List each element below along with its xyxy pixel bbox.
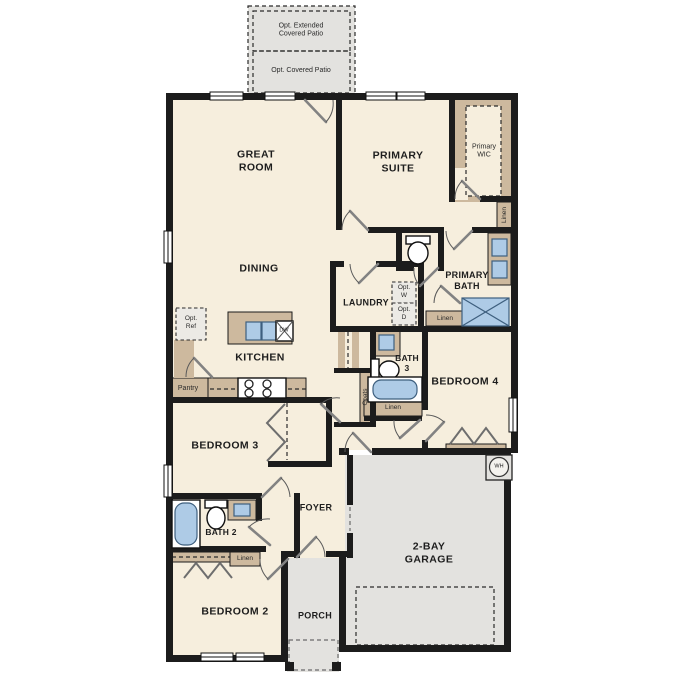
linen-bath-hall-box	[426, 311, 464, 326]
primary-wic-shelving	[452, 100, 513, 202]
shower-primary	[462, 298, 509, 326]
patio-area	[248, 6, 355, 98]
dishwasher-box	[276, 321, 293, 341]
bath2-vanity	[228, 500, 256, 520]
range-icon	[238, 378, 286, 398]
tub-bath3	[368, 377, 422, 402]
linen-primary-box	[497, 202, 513, 228]
toilet-bath2	[205, 500, 227, 529]
bath3-vanity	[374, 330, 400, 356]
laundry-closet-shelving	[338, 330, 359, 370]
garage-floor	[345, 455, 505, 646]
linen-bath2-box	[230, 552, 260, 566]
floor-plan: Opt. Extended Covered Patio Opt. Covered…	[0, 0, 687, 687]
opt-ref-box	[176, 308, 206, 340]
tub-bath2	[172, 500, 200, 548]
toilet-water-closet	[406, 236, 430, 264]
kitchen-sink	[246, 322, 276, 340]
porch-floor	[285, 558, 341, 672]
bedroom2-closet-shelf	[170, 552, 234, 562]
floor-plan-linework	[0, 0, 687, 687]
opt-washer-box	[392, 282, 416, 303]
opt-dryer-box	[392, 303, 416, 325]
water-heater-icon	[486, 455, 512, 480]
primary-bath-vanity	[488, 233, 511, 285]
